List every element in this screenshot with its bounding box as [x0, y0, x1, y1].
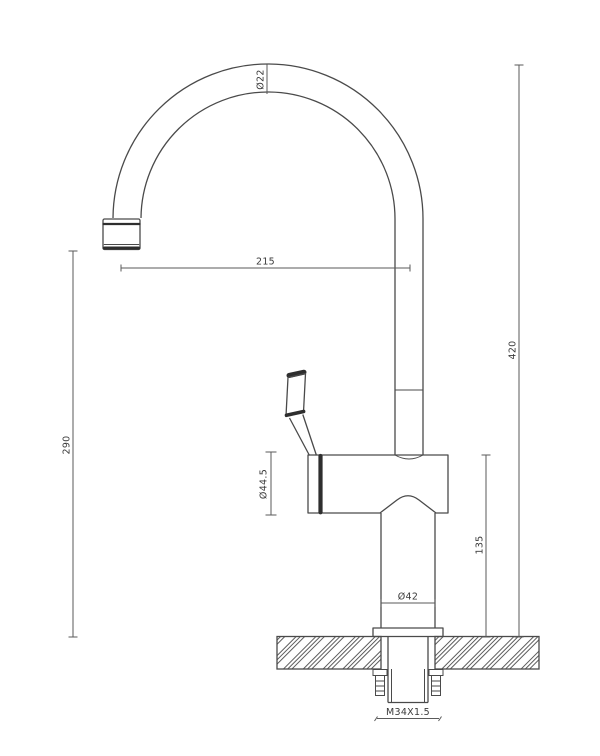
threaded-shank [388, 637, 428, 703]
handle-band [287, 412, 304, 416]
base-height-dimension: 135 [475, 455, 491, 637]
shank-body [388, 637, 428, 703]
spout-diameter-dimension: Ø22 [256, 65, 268, 95]
faucet-body [308, 455, 448, 513]
spout-reach-label: 215 [256, 257, 275, 268]
countertop-left-slab [277, 637, 381, 670]
column-sides [381, 513, 435, 628]
spout-diameter-label: Ø22 [256, 69, 267, 89]
shank-thread-lines [392, 669, 425, 702]
thread-spec-label: M34X1.5 [386, 707, 430, 718]
stud-threads [376, 681, 385, 691]
countertop-section [277, 637, 539, 670]
outlet-height-label: 290 [62, 435, 73, 454]
spout-reach-dimension: 215 [121, 257, 410, 272]
base-diameter-label: Ø42 [398, 592, 418, 603]
handle-lever [286, 372, 317, 455]
thread-spec-dimension: M34X1.5 [375, 707, 442, 721]
faucet-drawing-svg: Ø22 215 290 420 135 Ø44.5 Ø42 M34X1.5 [0, 0, 600, 756]
mounting-stud-right [429, 670, 443, 696]
mounting-flange [373, 628, 443, 637]
handle-rod [290, 415, 317, 456]
technical-drawing-canvas: Ø22 215 290 420 135 Ø44.5 Ø42 M34X1.5 [0, 0, 600, 756]
aerator [103, 219, 140, 250]
stud-threads [432, 681, 441, 691]
body-diameter-label: Ø44.5 [259, 469, 270, 499]
mounting-stud-left [373, 670, 387, 696]
total-height-dimension: 420 [508, 65, 524, 637]
outlet-height-dimension: 290 [62, 251, 78, 637]
countertop-right-slab [435, 637, 539, 670]
body-outline [308, 455, 448, 513]
base-column [373, 513, 443, 637]
stud-head [429, 670, 443, 676]
total-height-label: 420 [508, 340, 519, 359]
stud-head [373, 670, 387, 676]
handle-grip [286, 374, 306, 417]
base-diameter-dimension: Ø42 [381, 592, 435, 608]
body-diameter-dimension: Ø44.5 [259, 452, 277, 515]
base-height-label: 135 [475, 535, 486, 554]
spout-inner-curve [141, 92, 395, 455]
